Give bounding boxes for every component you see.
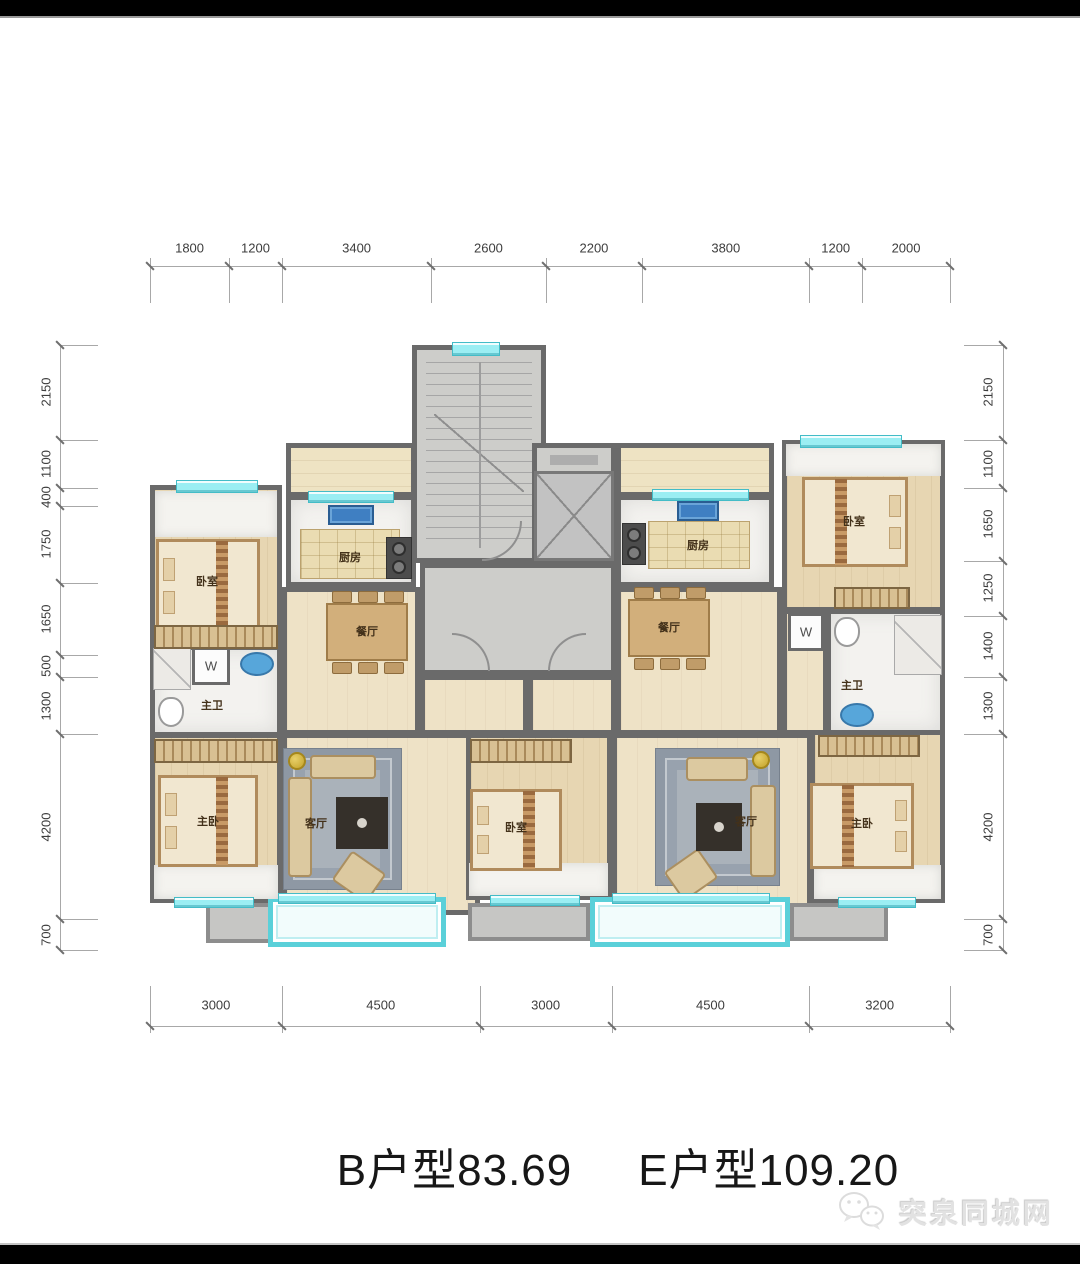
toilet [834, 617, 860, 647]
watermark-text: 突泉同城网 [899, 1192, 1054, 1232]
sink [328, 505, 374, 525]
room-balcony-cyan-right [590, 897, 790, 947]
dimension-label: 1100 [981, 450, 996, 478]
wardrobe [818, 735, 920, 757]
room-kitchen-balcony-left [286, 443, 416, 497]
dim-tick [964, 677, 1003, 678]
dim-main-line [150, 266, 950, 267]
pillow [889, 527, 901, 549]
window [612, 893, 770, 904]
room-label: 餐厅 [356, 623, 378, 639]
dim-main-line [60, 345, 61, 950]
top-divider-line [0, 16, 1080, 18]
wardrobe [834, 587, 910, 609]
elevator [534, 471, 614, 561]
dim-tick [964, 440, 1003, 441]
dimension-label: 1400 [981, 632, 996, 661]
room-entry-hall-right [528, 675, 616, 735]
dimension-label: 2600 [474, 241, 503, 256]
dimension-label: 2150 [981, 378, 996, 407]
floor-plan-drawing: 卧室厨房餐厅主卫W主卧客厅卧室厨房餐厅卧室W主卫客厅主卧 [150, 345, 950, 950]
dim-tick [60, 345, 98, 346]
pillow [163, 558, 175, 581]
dimension-label: 3200 [865, 998, 894, 1013]
window [278, 893, 436, 904]
dimension-label: 3800 [711, 241, 740, 256]
dimension-label: 2200 [579, 241, 608, 256]
sink-round [240, 652, 274, 676]
dimension-label: 400 [39, 486, 54, 508]
dim-tick [60, 583, 98, 584]
dim-tick [964, 488, 1003, 489]
pillow [895, 831, 907, 852]
dimension-label: 4500 [366, 998, 395, 1013]
dimension-label: 500 [39, 655, 54, 677]
room-label: 卧室 [505, 819, 527, 835]
dimension-label: 3400 [342, 241, 371, 256]
room-label: 餐厅 [658, 619, 680, 635]
mstrip [154, 865, 278, 899]
chair [332, 591, 352, 603]
dimension-label: 4200 [981, 812, 996, 841]
sink [677, 501, 719, 521]
wardrobe [154, 739, 278, 763]
window [176, 480, 258, 493]
room-label: 厨房 [687, 537, 709, 553]
chair [332, 662, 352, 674]
dimension-label: 4500 [696, 998, 725, 1013]
unit-e-title: E户型109.20 [638, 1134, 899, 1198]
bottom-black-bar [0, 1245, 1080, 1264]
wardrobe [154, 625, 278, 649]
pillow [477, 806, 489, 826]
watermark: 突泉同城网 [837, 1190, 1054, 1234]
window [800, 435, 902, 448]
room-label: 主卧 [851, 815, 873, 831]
dim-tick [60, 488, 98, 489]
room-label: 卧室 [196, 573, 218, 589]
dim-tick [60, 677, 98, 678]
pillow [163, 591, 175, 614]
pillow [165, 793, 177, 815]
chair [686, 658, 706, 670]
room-balcony-gray-right [790, 903, 888, 941]
shower [894, 615, 942, 675]
room-label: 主卧 [197, 813, 219, 829]
floor-plan-page: 1800120034002600220038001200200030004500… [0, 0, 1080, 1264]
chair [686, 587, 706, 599]
room-label: 客厅 [305, 815, 327, 831]
dim-tick [964, 950, 1003, 951]
room-label: 主卫 [201, 697, 223, 713]
dim-tick [964, 919, 1003, 920]
room-label: W [800, 625, 812, 640]
dimension-label: 1200 [821, 241, 850, 256]
unit-b-title: B户型83.69 [337, 1134, 572, 1198]
dimension-label: 2150 [39, 378, 54, 407]
chair [634, 658, 654, 670]
mstrip [814, 865, 941, 899]
dimension-label: 1650 [981, 510, 996, 539]
window [652, 489, 749, 501]
dim-tick [964, 345, 1003, 346]
dim-tick [60, 440, 98, 441]
dimension-label: 1650 [39, 604, 54, 633]
room-entry-hall-left [420, 675, 528, 735]
room-label: 卧室 [843, 513, 865, 529]
tv [336, 797, 388, 849]
sofa-v [750, 785, 776, 877]
top-black-bar [0, 0, 1080, 16]
lamp [752, 751, 770, 769]
dim-tick [964, 616, 1003, 617]
chair [660, 658, 680, 670]
chair [384, 662, 404, 674]
room-label: 主卫 [841, 677, 863, 693]
pillow [477, 835, 489, 855]
chair [358, 591, 378, 603]
window [174, 897, 254, 908]
dimension-label: 1100 [39, 450, 54, 478]
mstrip [786, 444, 941, 476]
dim-tick [964, 561, 1003, 562]
dimension-label: 3000 [201, 998, 230, 1013]
dim-tick [60, 950, 98, 951]
chair [660, 587, 680, 599]
stove [386, 537, 412, 579]
dimension-label: 1250 [981, 574, 996, 603]
sofa-h [310, 755, 376, 779]
stove [622, 523, 646, 565]
sink-round [840, 703, 874, 727]
room-stairwell [412, 345, 546, 563]
dim-tick [964, 734, 1003, 735]
dimension-label: 2000 [892, 241, 921, 256]
room-balcony-gray-mid [468, 903, 590, 941]
window [452, 342, 500, 356]
dim-tick [60, 919, 98, 920]
dim-tick [60, 734, 98, 735]
chair [634, 587, 654, 599]
dimension-label: 1750 [39, 530, 54, 559]
dimension-label: 3000 [531, 998, 560, 1013]
lamp [288, 752, 306, 770]
shower [153, 648, 191, 690]
dimension-label: 4200 [39, 812, 54, 841]
dimension-label: 1300 [981, 691, 996, 720]
dimension-label: 700 [981, 924, 996, 946]
room-label: 厨房 [339, 549, 361, 565]
dimension-label: 700 [39, 924, 54, 946]
chair [384, 591, 404, 603]
room-label: W [205, 659, 217, 674]
window [838, 897, 916, 908]
sign [550, 455, 598, 465]
dimension-label: 1800 [175, 241, 204, 256]
plan-title: B户型83.69 E户型109.20 [78, 1134, 1080, 1198]
dim-main-line [1003, 345, 1004, 950]
room-corridor [420, 563, 616, 675]
pillow [895, 800, 907, 821]
wardrobe [470, 739, 572, 763]
dim-main-line [150, 1026, 950, 1027]
room-balcony-cyan-left [268, 897, 446, 947]
dimension-label: 1200 [241, 241, 270, 256]
window [308, 491, 394, 503]
chair [358, 662, 378, 674]
dim-tick [60, 655, 98, 656]
sofa-h [686, 757, 748, 781]
pillow [165, 826, 177, 848]
dimension-label: 1300 [39, 691, 54, 720]
toilet [158, 697, 184, 727]
dim-tick [60, 506, 98, 507]
wechat-bubbles-icon [837, 1190, 889, 1234]
window [490, 895, 580, 906]
room-label: 客厅 [735, 813, 757, 829]
mstrip [155, 491, 277, 537]
pillow [889, 495, 901, 517]
